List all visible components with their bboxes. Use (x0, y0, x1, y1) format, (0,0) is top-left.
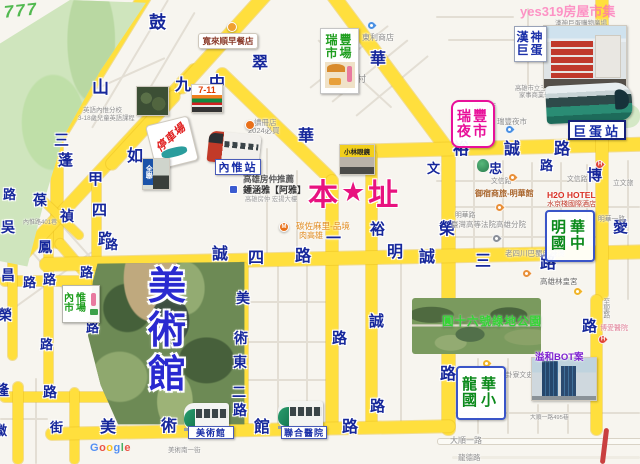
road-name-char: 路 (342, 420, 358, 436)
pxmart-tile[interactable]: 全聯 (142, 158, 170, 190)
road-name-char: 誠 (504, 142, 520, 158)
ruifeng-night-line1: 瑞豐 (457, 109, 489, 124)
neiwei-market-illustration (90, 293, 98, 315)
google-logo-letter: o (106, 442, 113, 454)
museum-big-char2: 術 (148, 312, 186, 350)
seven-eleven-label: 7-11 (192, 85, 222, 95)
dome-station-box[interactable]: 巨蛋站 (568, 120, 626, 140)
road-name-char: 街 (50, 421, 63, 434)
mrt-train-photo (545, 82, 633, 124)
hanshin-arena-photo (543, 25, 627, 89)
bot-tower-2 (561, 366, 575, 395)
map-pin-icon[interactable] (522, 269, 531, 278)
road-name-char: 館 (254, 420, 270, 436)
hanshin-arena-label-box[interactable]: 漢神 巨蛋 (514, 26, 547, 62)
poi-label: 明華一路 (598, 216, 625, 224)
poi-label: 御宿商旅-明華館 (475, 189, 534, 198)
road-name-char: 鼓 (149, 14, 166, 31)
road-name-char: 裕 (370, 222, 385, 237)
bot-base (532, 396, 596, 400)
poi-label: 高雄房仲推薦 (243, 175, 294, 185)
google-logo-letter: e (124, 442, 131, 454)
road-name-char: 如 (127, 149, 143, 165)
museum-lrt-station-label: 美術館 (196, 426, 226, 439)
poi-label: 高雄林皇宮 (540, 278, 578, 287)
road-name-char: 東 (233, 355, 247, 369)
road-name-char: 路 (43, 273, 56, 286)
street (0, 418, 48, 420)
poi-label: 至聖路 (601, 298, 609, 318)
bot-project-label: 溢和BOT案 (535, 349, 584, 363)
street (277, 264, 279, 426)
road-name-char: 鳳 (38, 240, 52, 254)
poi-label: 大順一路 (450, 436, 482, 445)
street (448, 39, 516, 41)
neiwei-market-box[interactable]: 內惟 市場 (62, 285, 100, 323)
poi-label: 3-18歲兒童英語課程 (78, 115, 135, 122)
road-name-char: 明 (387, 245, 403, 261)
street (452, 206, 640, 208)
hanshin-line2: 巨蛋 (516, 44, 544, 57)
map-pin-icon[interactable] (495, 203, 504, 212)
poi-label: 臺灣高等法院高雄分院 (451, 221, 526, 230)
road-name-char: 路 (440, 367, 456, 383)
hospital-lrt-station-label: 聯合醫院 (284, 426, 324, 439)
ruifeng-night-line2: 夜市 (457, 124, 489, 139)
road (13, 382, 23, 464)
road-name-char: 文 (427, 162, 440, 175)
poi-label: 鍾涵雅【阿雅】 (243, 185, 306, 195)
street (35, 378, 37, 464)
road-name-char: 四 (248, 251, 264, 267)
street (400, 262, 402, 428)
map-pin-icon[interactable] (505, 125, 514, 134)
poi-label: 立文旅 (613, 180, 633, 188)
hospital-lrt-station-box[interactable]: 聯合醫院 (281, 426, 327, 439)
road-name-char: 華 (370, 52, 386, 68)
poi-label: 大順一路495巷 (530, 415, 569, 422)
road-name-char: 甲 (88, 172, 103, 187)
road-name-char: 榮 (0, 308, 12, 322)
google-logo-watermark: Google (90, 442, 131, 454)
minghua-junior-high-box[interactable]: 明華 國中 (545, 210, 595, 262)
pxmart-sign: 全聯 (143, 159, 153, 185)
road-name-char: 蓬 (58, 153, 73, 168)
pxmart-storefront (153, 159, 169, 189)
poi-label: 英語內惟分校 (83, 107, 122, 114)
road-name-char: 華 (298, 129, 314, 145)
street (246, 341, 330, 343)
road-name-char: 誠 (419, 250, 435, 266)
road-name-char: 隆 (0, 383, 9, 397)
street (507, 358, 509, 434)
address-marker-char-left: 本 (308, 170, 338, 214)
road-name-char: 美 (100, 420, 116, 436)
poi-label: 博愛醫院 (600, 325, 628, 333)
ruifeng-market-illustration (325, 62, 355, 88)
road-name-char: 路 (3, 188, 16, 201)
minghua-line1: 明華 (551, 220, 589, 236)
dome-station-label: 巨蛋站 (573, 121, 621, 140)
mrt-train-cab (614, 89, 629, 109)
map-pin-icon[interactable] (573, 287, 582, 296)
road-name-char: 九 (175, 78, 191, 94)
street (296, 170, 298, 252)
road-name-char: 誠 (212, 247, 228, 263)
ruifeng-night-market-box[interactable]: 瑞豐 夜市 (451, 100, 495, 148)
road-name-char: 山 (92, 79, 109, 96)
road-name-char: 路 (295, 249, 311, 265)
road-name-char: 葆 (33, 193, 47, 207)
road-name-char: 路 (233, 403, 247, 417)
street (436, 16, 514, 18)
road-name-char: 徽 (0, 424, 7, 437)
seven-eleven-tile[interactable]: 7-11 (191, 84, 223, 113)
ruifeng-market-box[interactable]: 瑞豐 市場 (320, 28, 359, 94)
park16-label-text: 圓十六號綠地公園 (442, 316, 542, 328)
longhua-elementary-box[interactable]: 龍華 國小 (456, 366, 506, 420)
bot-project-label-text: 溢和BOT案 (535, 352, 584, 363)
road-name-char: 路 (40, 338, 53, 351)
street (246, 379, 330, 381)
ruifeng-market-line2: 市場 (325, 47, 353, 60)
poi-label: 高雄房仲 宏揚大樓 (245, 196, 297, 203)
road-name-char: 路 (582, 319, 597, 334)
road-name-char: 昌 (1, 268, 15, 282)
road-huarong (442, 145, 455, 435)
address-marker-char-right: 址 (368, 170, 398, 214)
museum-park-big-label: 美 術 館 (148, 268, 186, 394)
poi-label: 水京棧國際酒店 (547, 201, 596, 209)
breakfast-shop-text: 寬來順早餐店 (202, 35, 253, 47)
longhua-line2: 國小 (462, 393, 500, 409)
watermark-777: 777 (3, 0, 39, 23)
tra-train-windows (224, 141, 259, 151)
museum-lrt-station-box[interactable]: 美術館 (188, 426, 234, 439)
road-name-char: 禎 (60, 209, 74, 223)
minghua-line2: 國中 (551, 236, 589, 252)
kobayashi-glasses-sign: 小林眼鏡 (340, 145, 374, 157)
address-marker[interactable]: 本 ★ 址 (308, 170, 398, 214)
street (246, 301, 330, 303)
poi-label: 文信路 (567, 176, 587, 184)
map-pin-icon[interactable]: M (279, 222, 289, 232)
bot-tower-1 (542, 361, 557, 395)
neiwei-station-label: 內惟站 (219, 159, 258, 175)
map-pin-icon[interactable] (227, 22, 237, 32)
map-pin-icon[interactable] (229, 185, 238, 194)
google-logo-letter: G (90, 442, 99, 454)
bot-towers-photo (531, 357, 597, 401)
road-name-char: 路 (23, 276, 36, 289)
google-logo-letter: g (114, 442, 121, 454)
breakfast-shop-label[interactable]: 寬來順早餐店 (198, 33, 258, 49)
road-name-char: 路 (105, 238, 118, 251)
star-icon: ★ (341, 177, 365, 208)
road-name-char: 三 (475, 254, 491, 270)
map-pin-icon[interactable] (245, 120, 255, 130)
lrt-tram-hospital (278, 401, 323, 429)
road-name-char: 路 (80, 266, 93, 279)
road-name-char: 路 (332, 331, 347, 346)
street (473, 160, 475, 258)
road-name-char: 翠 (252, 56, 268, 72)
map-pin-icon[interactable] (367, 21, 376, 30)
road-name-char: 術 (234, 331, 248, 345)
poi-label: 明華路 (455, 212, 475, 220)
map-pin-icon[interactable]: H (595, 160, 604, 169)
road-name-char: 吳 (1, 220, 15, 234)
road-name-char: 四 (92, 203, 107, 218)
map-pin-icon[interactable] (508, 173, 517, 182)
tra-train-windshield (209, 133, 223, 144)
road-name-char: 三 (54, 133, 69, 148)
museum-big-char3: 館 (148, 356, 186, 394)
tree-icon (477, 159, 489, 172)
poi-label: 內惟路401巷 (23, 220, 57, 227)
hanshin-red-building (551, 41, 594, 78)
road-name-char: 路 (370, 399, 385, 414)
map-screenshot: 7-11 停車場 全聯 小林眼鏡 寬來順早餐店 (0, 0, 640, 464)
road-name-char: 路 (540, 159, 553, 172)
map-pin-icon[interactable] (492, 234, 501, 243)
lrt-tram-nose (278, 407, 289, 427)
park16-label: 圓十六號綠地公園 (442, 313, 542, 329)
road-name-char: 博 (587, 168, 602, 183)
road (70, 388, 79, 464)
poi-label: 美術南一街 (168, 447, 201, 454)
road-name-char: 一 (326, 231, 341, 246)
seven-eleven-storefront (192, 95, 222, 112)
road-name-char: 美 (236, 291, 250, 305)
museum-big-char1: 美 (148, 268, 186, 306)
street (531, 162, 533, 254)
road-name-char: 術 (161, 419, 177, 435)
road-name-char: 路 (43, 385, 57, 399)
road-name-char: 忠 (489, 162, 502, 175)
map-pin-icon[interactable]: H (598, 335, 607, 344)
road-name-char: 誠 (369, 314, 384, 329)
watermark-yes319: yes319房屋市集 (520, 1, 615, 20)
neiwei-station-box[interactable]: 內惟站 (215, 159, 261, 175)
poi-label: 龍德路 (458, 454, 481, 463)
poi-label: 東利商店 (362, 33, 394, 42)
poi-label: 肉高雄 (299, 231, 323, 240)
lrt-tram-windows (290, 407, 322, 415)
hanshin-white-tower (595, 35, 621, 78)
longhua-line1: 龍華 (462, 377, 500, 393)
road-name-char: 二 (232, 385, 246, 399)
lrt-tram-windows (196, 409, 228, 417)
neiwei-market-line2: 市場 (64, 304, 88, 315)
dark-shop-photo-tile[interactable] (136, 86, 169, 116)
poi-label: H2O HOTEL (547, 191, 596, 201)
road-name-char: 路 (554, 142, 570, 158)
